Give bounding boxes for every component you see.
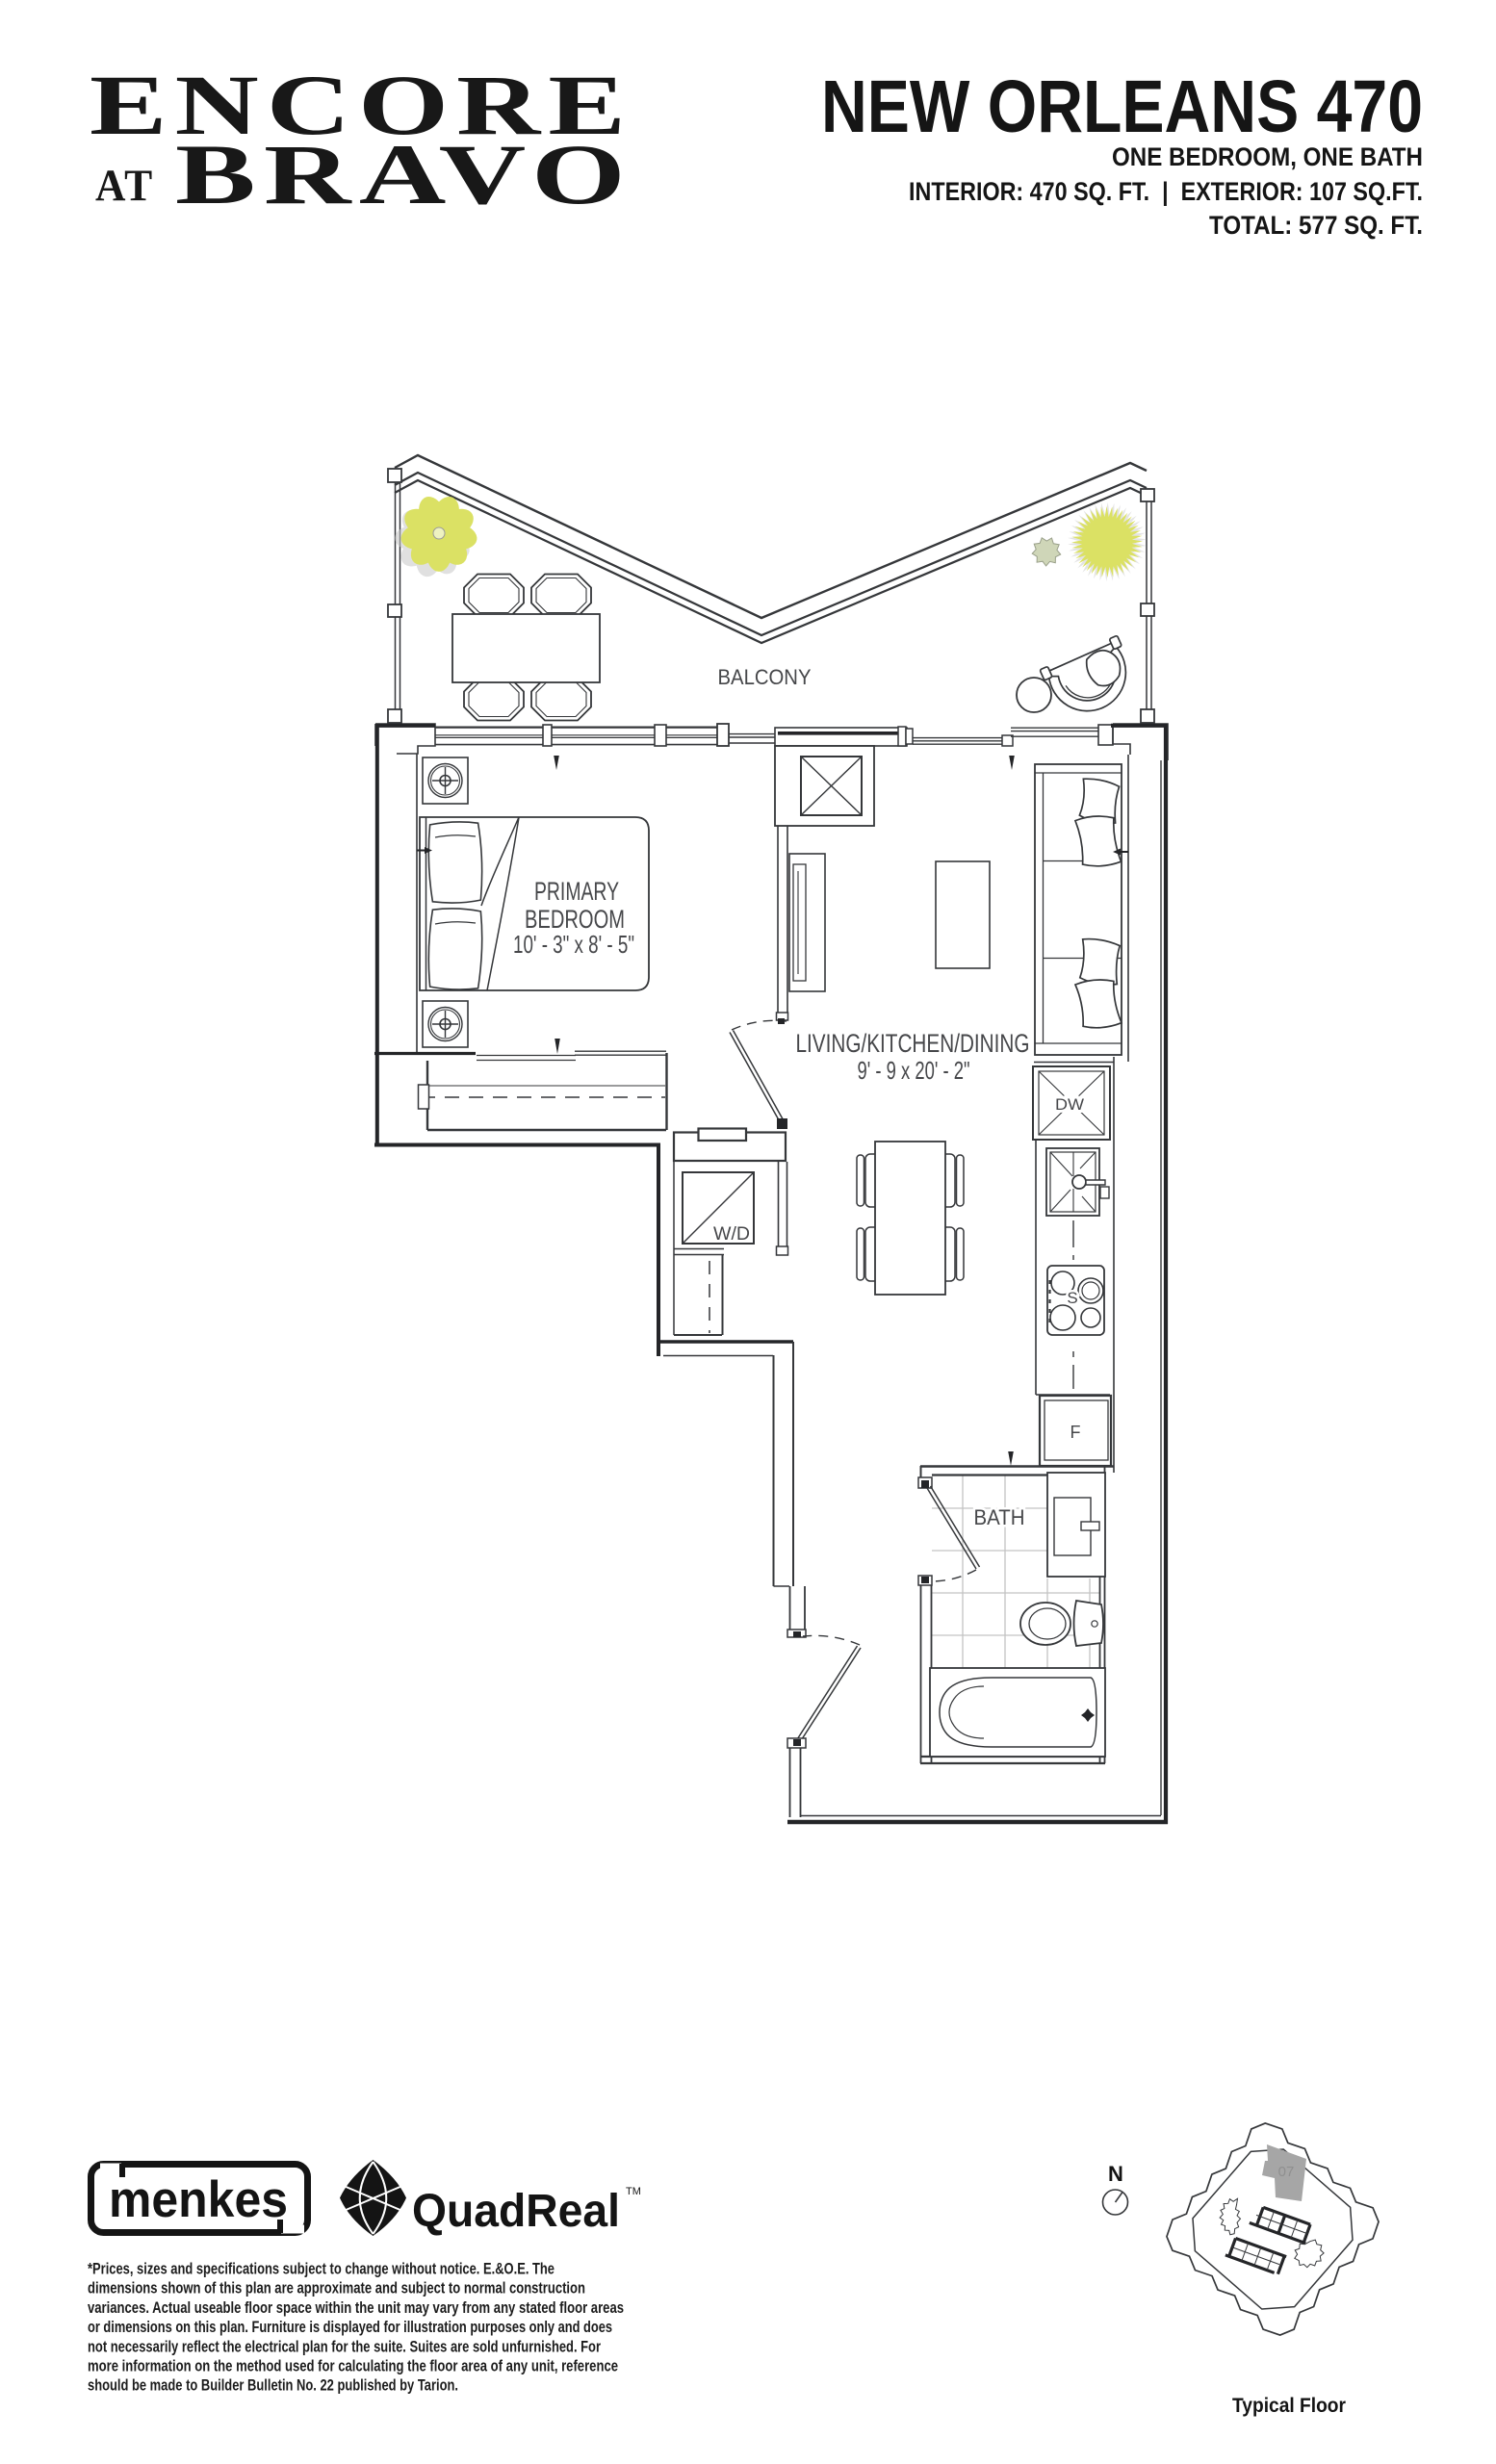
svg-text:not necessarily reflect the el: not necessarily reflect the electrical p… (88, 2338, 601, 2355)
svg-text:S: S (1067, 1289, 1077, 1307)
svg-text:ONE BEDROOM, ONE BATH: ONE BEDROOM, ONE BATH (1112, 142, 1423, 171)
svg-text:variances. Actual useable floo: variances. Actual useable floor space wi… (88, 2299, 624, 2317)
svg-text:BATH: BATH (974, 1505, 1025, 1529)
svg-text:07: 07 (1278, 2164, 1295, 2180)
svg-text:dimensions shown of this plan: dimensions shown of this plan are approx… (88, 2280, 585, 2297)
svg-text:AT: AT (95, 161, 154, 211)
svg-text:9' - 9 x 20' - 2": 9' - 9 x 20' - 2" (858, 1056, 970, 1085)
svg-text:DW: DW (1055, 1095, 1084, 1114)
svg-text:menkes: menkes (109, 2171, 288, 2228)
svg-text:10' - 3" x 8' - 5": 10' - 3" x 8' - 5" (513, 930, 634, 959)
svg-text:*Prices, sizes and specificati: *Prices, sizes and specifications subjec… (88, 2261, 555, 2278)
svg-text:NEW ORLEANS 470: NEW ORLEANS 470 (821, 65, 1423, 148)
svg-text:BALCONY: BALCONY (718, 665, 812, 689)
svg-text:F: F (1070, 1423, 1081, 1442)
svg-text:should be made to Builder Bull: should be made to Builder Bulletin No. 2… (88, 2377, 458, 2395)
svg-text:Typical Floor: Typical Floor (1232, 2395, 1346, 2417)
svg-text:W/D: W/D (713, 1223, 750, 1245)
svg-text:TOTAL: 577 SQ. FT.: TOTAL: 577 SQ. FT. (1209, 211, 1423, 240)
svg-text:INTERIOR: 470 SQ. FT. | EXTE: INTERIOR: 470 SQ. FT. | EXTERIOR: 107 SQ… (909, 177, 1423, 206)
svg-text:N: N (1108, 2162, 1123, 2186)
svg-text:TM: TM (626, 2186, 641, 2197)
svg-text:more information on the method: more information on the method used for … (88, 2358, 618, 2375)
svg-text:or dimensions on this plan. Fu: or dimensions on this plan. Furniture is… (88, 2319, 612, 2336)
svg-text:QuadReal: QuadReal (412, 2186, 620, 2237)
svg-text:BRAVO: BRAVO (175, 128, 633, 222)
svg-text:PRIMARY: PRIMARY (534, 877, 619, 906)
svg-text:LIVING/KITCHEN/DINING: LIVING/KITCHEN/DINING (796, 1029, 1030, 1058)
